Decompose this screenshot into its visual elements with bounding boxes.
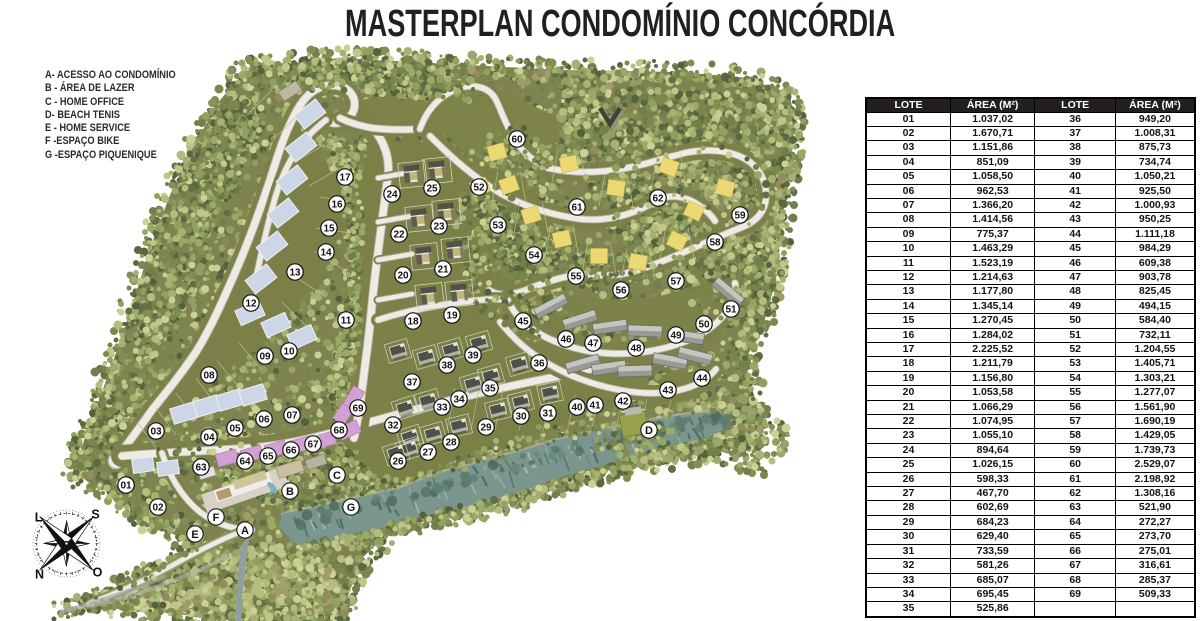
svg-text:64: 64 bbox=[239, 457, 251, 468]
svg-text:G: G bbox=[347, 502, 356, 514]
svg-text:26: 26 bbox=[392, 457, 404, 468]
svg-text:42: 42 bbox=[617, 397, 629, 408]
svg-text:31: 31 bbox=[542, 409, 554, 420]
svg-text:19: 19 bbox=[446, 311, 458, 322]
svg-text:D: D bbox=[645, 425, 653, 437]
svg-text:40: 40 bbox=[571, 403, 583, 414]
svg-text:39: 39 bbox=[467, 351, 479, 362]
svg-text:13: 13 bbox=[289, 268, 301, 279]
svg-text:55: 55 bbox=[570, 272, 582, 283]
svg-text:49: 49 bbox=[670, 331, 682, 342]
svg-text:37: 37 bbox=[406, 378, 418, 389]
svg-text:44: 44 bbox=[696, 374, 708, 385]
svg-text:A: A bbox=[241, 525, 249, 537]
svg-text:05: 05 bbox=[229, 424, 241, 435]
svg-text:43: 43 bbox=[662, 386, 674, 397]
svg-text:08: 08 bbox=[203, 371, 215, 382]
svg-text:O: O bbox=[93, 566, 103, 580]
svg-text:60: 60 bbox=[511, 135, 523, 146]
svg-text:41: 41 bbox=[589, 401, 601, 412]
svg-text:66: 66 bbox=[285, 446, 297, 457]
svg-text:L: L bbox=[35, 511, 43, 525]
svg-text:63: 63 bbox=[195, 463, 207, 474]
svg-text:30: 30 bbox=[515, 412, 527, 423]
svg-text:45: 45 bbox=[517, 317, 529, 328]
svg-text:B: B bbox=[286, 486, 294, 498]
svg-text:03: 03 bbox=[150, 427, 162, 438]
svg-text:36: 36 bbox=[533, 359, 545, 370]
svg-text:29: 29 bbox=[480, 423, 492, 434]
svg-text:47: 47 bbox=[587, 339, 599, 350]
svg-text:20: 20 bbox=[397, 271, 409, 282]
svg-text:23: 23 bbox=[433, 222, 445, 233]
svg-text:C: C bbox=[333, 470, 341, 482]
svg-text:06: 06 bbox=[258, 415, 270, 426]
svg-text:67: 67 bbox=[307, 440, 319, 451]
svg-text:68: 68 bbox=[333, 426, 345, 437]
svg-text:59: 59 bbox=[734, 211, 746, 222]
svg-text:54: 54 bbox=[528, 251, 540, 262]
svg-text:28: 28 bbox=[445, 438, 457, 449]
svg-text:17: 17 bbox=[339, 173, 351, 184]
svg-text:21: 21 bbox=[437, 265, 449, 276]
svg-text:16: 16 bbox=[331, 200, 343, 211]
svg-text:04: 04 bbox=[203, 433, 215, 444]
svg-text:14: 14 bbox=[320, 248, 332, 259]
svg-text:N: N bbox=[35, 568, 44, 582]
svg-text:15: 15 bbox=[323, 224, 335, 235]
svg-text:10: 10 bbox=[283, 347, 295, 358]
svg-text:E: E bbox=[191, 529, 198, 541]
svg-text:34: 34 bbox=[453, 395, 465, 406]
svg-text:61: 61 bbox=[571, 203, 583, 214]
svg-text:S: S bbox=[91, 508, 99, 522]
svg-text:35: 35 bbox=[484, 384, 496, 395]
svg-text:01: 01 bbox=[120, 481, 132, 492]
svg-text:F: F bbox=[213, 512, 220, 524]
svg-text:46: 46 bbox=[560, 335, 572, 346]
svg-text:09: 09 bbox=[259, 352, 271, 363]
svg-text:27: 27 bbox=[422, 448, 434, 459]
svg-text:52: 52 bbox=[473, 183, 485, 194]
svg-text:56: 56 bbox=[615, 286, 627, 297]
svg-text:24: 24 bbox=[386, 190, 398, 201]
svg-text:02: 02 bbox=[152, 503, 164, 514]
svg-text:32: 32 bbox=[387, 421, 399, 432]
svg-text:22: 22 bbox=[393, 230, 405, 241]
svg-text:33: 33 bbox=[436, 403, 448, 414]
svg-text:07: 07 bbox=[286, 411, 298, 422]
svg-text:69: 69 bbox=[352, 404, 364, 415]
svg-text:38: 38 bbox=[441, 361, 453, 372]
svg-text:50: 50 bbox=[698, 320, 710, 331]
svg-text:11: 11 bbox=[341, 316, 352, 327]
svg-text:57: 57 bbox=[670, 277, 682, 288]
svg-text:18: 18 bbox=[407, 317, 419, 328]
svg-text:48: 48 bbox=[630, 344, 642, 355]
svg-text:65: 65 bbox=[262, 452, 274, 463]
svg-text:53: 53 bbox=[492, 221, 504, 232]
svg-text:58: 58 bbox=[709, 238, 721, 249]
svg-text:51: 51 bbox=[725, 305, 737, 316]
svg-text:62: 62 bbox=[652, 194, 664, 205]
svg-text:12: 12 bbox=[245, 299, 257, 310]
svg-text:25: 25 bbox=[426, 184, 438, 195]
